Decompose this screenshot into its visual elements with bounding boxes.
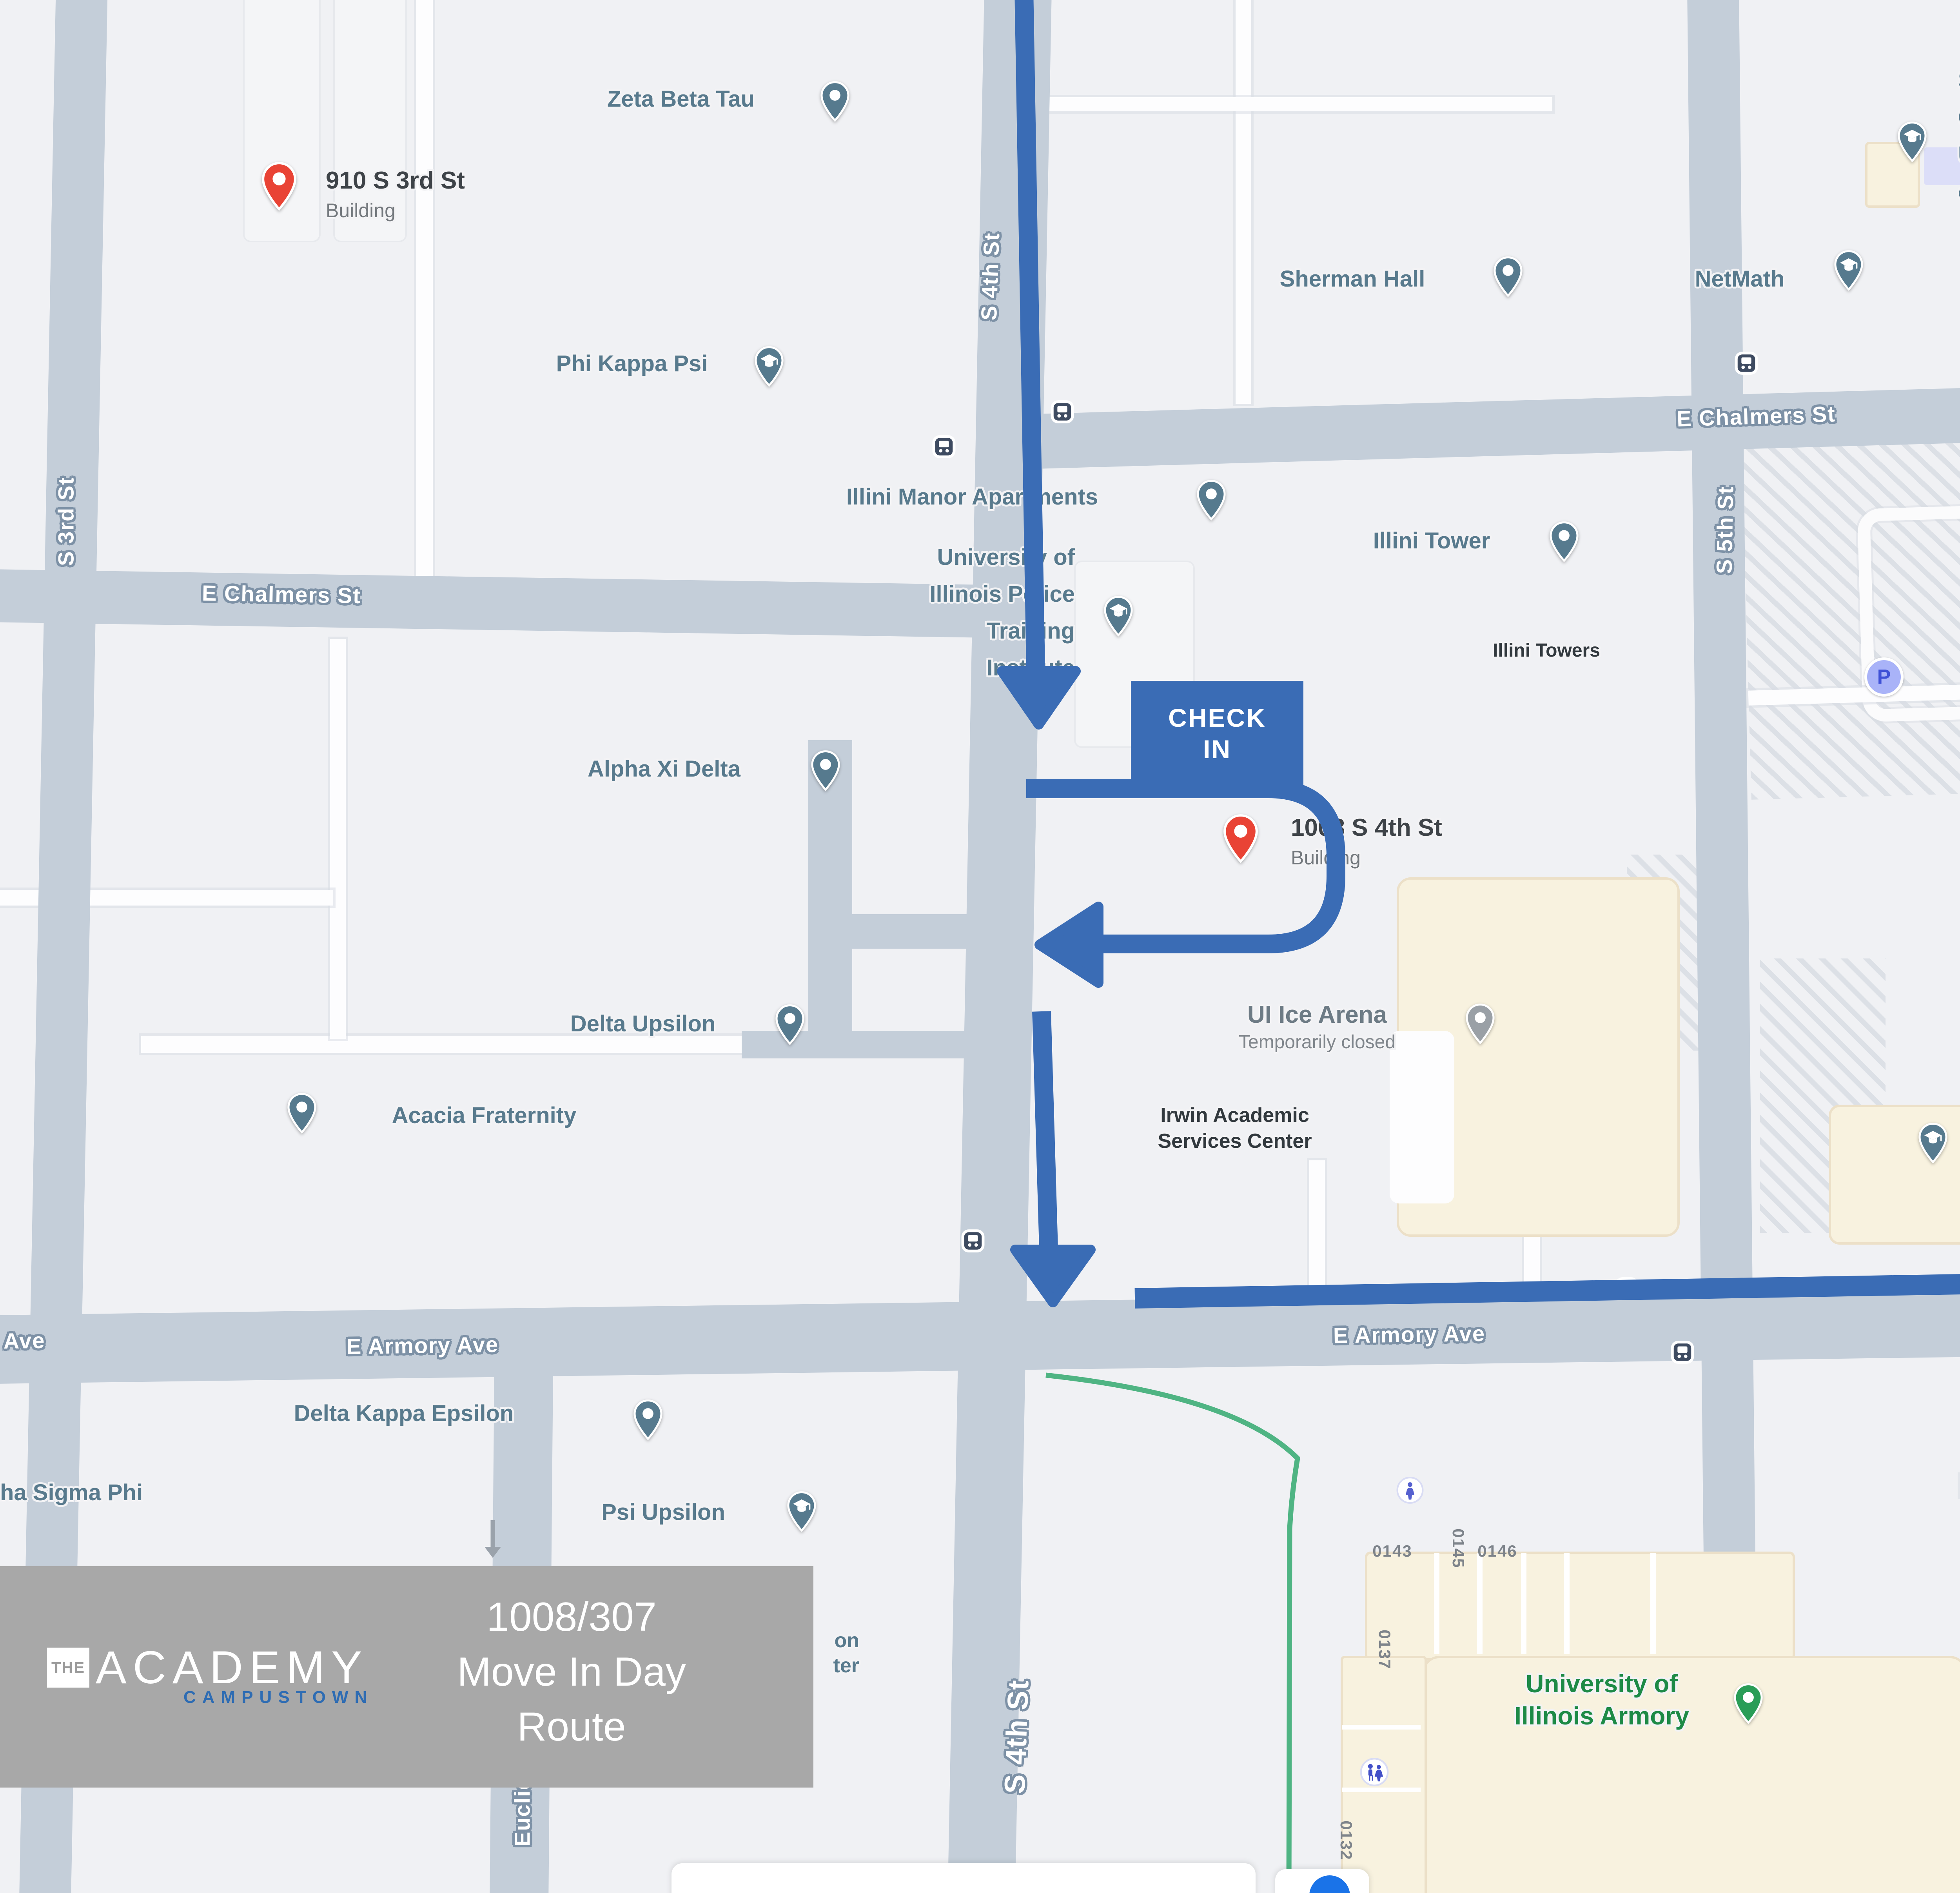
street-label-e-armory-ave: E Armory Ave bbox=[1333, 1321, 1485, 1348]
illini-manor-apartments-label-line: Illini Manor Apartments bbox=[846, 486, 1098, 508]
illini-manor-apartments-label[interactable]: Illini Manor Apartments bbox=[846, 486, 1098, 508]
university-of-illinois-armory-label-line: Illinois Armory bbox=[1514, 1700, 1689, 1732]
room-divider bbox=[1434, 1553, 1439, 1654]
logo-the-mark: THE bbox=[47, 1648, 89, 1688]
bus-stop-icon[interactable] bbox=[1670, 1339, 1695, 1367]
room-number: 0137 bbox=[1375, 1630, 1394, 1669]
delta-upsilon-label[interactable]: Delta Upsilon bbox=[570, 1013, 716, 1035]
ui-ice-arena-courtyard bbox=[1390, 1031, 1454, 1203]
room-divider bbox=[1477, 1553, 1483, 1654]
illini-tower-label-line: Illini Tower bbox=[1373, 530, 1490, 552]
netmath-pin[interactable] bbox=[1834, 250, 1864, 292]
street-label-s-5th-st: S 5th St bbox=[1711, 486, 1739, 574]
map-info-card[interactable] bbox=[671, 1863, 1256, 1893]
university-of-illinois-armory-label[interactable]: University ofIllinois Armory bbox=[1514, 1668, 1689, 1732]
route-arrowhead-left bbox=[1040, 907, 1098, 983]
910-s-3rd-st-pin[interactable] bbox=[261, 162, 297, 212]
alpha-xi-delta-label-line: Alpha Xi Delta bbox=[588, 758, 740, 780]
minor-road bbox=[1035, 97, 1552, 111]
acacia-fraternity-label-line: Acacia Fraternity bbox=[392, 1104, 577, 1127]
u-of-i-police-training-institute-label-line: University of bbox=[929, 539, 1075, 576]
street-label-e-chalmers-st: E Chalmers St bbox=[1676, 401, 1836, 432]
bus-stop-icon[interactable] bbox=[1049, 399, 1075, 427]
check-in-line1: CHECK bbox=[1131, 702, 1303, 733]
room-divider bbox=[1521, 1553, 1526, 1654]
910-s-3rd-st-label-line: Building bbox=[326, 196, 465, 225]
ui-ice-arena-label-line: Temporarily closed bbox=[1239, 1029, 1396, 1056]
minor-road bbox=[1236, 0, 1251, 404]
bus-stop-icon[interactable] bbox=[1614, 1276, 1640, 1304]
lavender-building bbox=[1924, 147, 1960, 185]
check-in-line2: IN bbox=[1131, 733, 1303, 765]
psi-upsilon-label[interactable]: Psi Upsilon bbox=[601, 1501, 725, 1524]
street-label-e-chalmers-st: E Chalmers St bbox=[202, 580, 361, 608]
room-number: 0146 bbox=[1477, 1542, 1517, 1561]
family-restroom-icon[interactable] bbox=[1359, 1757, 1389, 1789]
delta-kappa-epsilon-label-line: Delta Kappa Epsilon bbox=[294, 1402, 514, 1425]
phi-kappa-psi-label-line: Phi Kappa Psi bbox=[556, 352, 708, 375]
delta-upsilon-pin[interactable] bbox=[775, 1004, 805, 1047]
street-label-s-4th-st: S 4th St bbox=[976, 232, 1005, 321]
room-divider bbox=[1650, 1553, 1656, 1654]
route-segment-u-turn bbox=[1026, 789, 1336, 944]
university-of-illinois-armory-pin[interactable] bbox=[1733, 1683, 1763, 1726]
irwin-academic-services-center-label[interactable]: Irwin AcademicServices Center bbox=[1158, 1102, 1312, 1154]
study-abroad-offices-pin[interactable] bbox=[1897, 121, 1927, 164]
ui-ice-arena-label[interactable]: UI Ice ArenaTemporarily closed bbox=[1239, 1001, 1396, 1056]
sherman-hall-pin[interactable] bbox=[1493, 256, 1523, 299]
street-label-e-armory-ave: E Armory Ave bbox=[346, 1332, 499, 1359]
alpha-xi-delta-label[interactable]: Alpha Xi Delta bbox=[588, 758, 740, 780]
academy-logo: THE ACADEMY bbox=[47, 1641, 368, 1694]
street-label-ave: Ave bbox=[3, 1328, 45, 1354]
illini-tower-label[interactable]: Illini Tower bbox=[1373, 530, 1490, 552]
room-divider bbox=[1342, 1725, 1421, 1730]
910-s-3rd-st-label-line: 910 S 3rd St bbox=[326, 166, 465, 196]
1008-s-4th-st-label-line: 1008 S 4th St bbox=[1291, 813, 1442, 843]
ui-ice-arena-pin[interactable] bbox=[1465, 1003, 1495, 1046]
minor-road bbox=[330, 639, 346, 1039]
street-label-s-4th-st: S 4th St bbox=[998, 1679, 1035, 1794]
logo-campustown-text: CAMPUSTOWN bbox=[183, 1688, 373, 1707]
psi-upsilon-label-line: Psi Upsilon bbox=[601, 1501, 725, 1524]
u-of-i-police-training-institute-label[interactable]: University ofIllinois PoliceTrainingInst… bbox=[929, 539, 1075, 686]
phi-kappa-psi-pin[interactable] bbox=[754, 346, 784, 388]
partial-label-label-line: on bbox=[833, 1628, 859, 1653]
study-abroad-offices-label-line: of Illinois bbox=[1958, 173, 1960, 211]
room-number: 0143 bbox=[1372, 1542, 1412, 1561]
ha-sigma-phi-label-line: ha Sigma Phi bbox=[0, 1481, 143, 1504]
room-divider bbox=[1564, 1553, 1570, 1654]
restroom-icon[interactable] bbox=[1396, 1476, 1424, 1506]
street-label-s-3rd-st: S 3rd St bbox=[53, 477, 79, 566]
armory-room-strip bbox=[1365, 1552, 1795, 1661]
map-canvas[interactable]: CHECK IN THE ACADEMY CAMPUSTOWN 1008/307… bbox=[0, 0, 1960, 1893]
u-of-i-police-training-institute-label-line: Training bbox=[929, 613, 1075, 650]
zeta-beta-tau-label[interactable]: Zeta Beta Tau bbox=[607, 88, 755, 111]
irwin-academic-services-center-label-line: Services Center bbox=[1158, 1128, 1312, 1154]
irwin-academic-services-center-label-line: Irwin Academic bbox=[1158, 1102, 1312, 1128]
acacia-fraternity-label[interactable]: Acacia Fraternity bbox=[392, 1104, 577, 1127]
u-of-i-police-training-institute-pin[interactable] bbox=[1103, 595, 1133, 638]
1008-s-4th-st-label[interactable]: 1008 S 4th StBuilding bbox=[1291, 813, 1442, 873]
logo-academy-text: ACADEMY bbox=[96, 1641, 368, 1694]
school-of-labor-employment-relations-pin[interactable] bbox=[1918, 1122, 1948, 1165]
1008-s-4th-st-label-line: Building bbox=[1291, 843, 1442, 873]
university-of-illinois-armory-label-line: University of bbox=[1514, 1668, 1689, 1700]
delta-kappa-epsilon-pin[interactable] bbox=[633, 1399, 663, 1442]
illini-towers-label[interactable]: Illini Towers bbox=[1493, 641, 1600, 660]
partial-label-label-line: ter bbox=[833, 1653, 859, 1678]
study-abroad-offices-label-line: Study Abroad bbox=[1958, 62, 1960, 99]
partial-label-label[interactable]: onter bbox=[833, 1628, 859, 1678]
room-number: 0132 bbox=[1337, 1820, 1356, 1860]
service-lane-road bbox=[847, 914, 976, 949]
bus-stop-icon[interactable] bbox=[931, 434, 957, 462]
psi-upsilon-pin[interactable] bbox=[787, 1491, 817, 1534]
e-chalmers-st-road-west bbox=[0, 569, 1020, 638]
armory-main-building bbox=[1422, 1656, 1960, 1893]
illini-manor-apartments-pin[interactable] bbox=[1196, 479, 1226, 522]
910-s-3rd-st-label[interactable]: 910 S 3rd StBuilding bbox=[326, 166, 465, 225]
delta-kappa-epsilon-label[interactable]: Delta Kappa Epsilon bbox=[294, 1402, 514, 1425]
ha-sigma-phi-label[interactable]: ha Sigma Phi bbox=[0, 1481, 143, 1504]
zeta-beta-tau-label-line: Zeta Beta Tau bbox=[607, 88, 755, 111]
netmath-label[interactable]: NetMath bbox=[1695, 268, 1785, 290]
zeta-beta-tau-pin[interactable] bbox=[820, 81, 850, 123]
netmath-label-line: NetMath bbox=[1695, 268, 1785, 290]
check-in-label: CHECK IN bbox=[1131, 681, 1303, 786]
room-number: 0145 bbox=[1449, 1528, 1468, 1568]
alpha-xi-delta-pin[interactable] bbox=[811, 750, 840, 793]
study-abroad-offices-label[interactable]: Study AbroadOffices at theUniversityof I… bbox=[1958, 62, 1960, 211]
minor-road bbox=[416, 0, 433, 580]
delta-upsilon-label-line: Delta Upsilon bbox=[570, 1013, 716, 1035]
ui-ice-arena-label-line: UI Ice Arena bbox=[1239, 1001, 1396, 1029]
illini-tower-pin[interactable] bbox=[1549, 521, 1579, 564]
u-of-i-police-training-institute-label-line: Institute bbox=[929, 650, 1075, 686]
1008-s-4th-st-pin[interactable] bbox=[1223, 814, 1258, 865]
route-segment-s4th-south bbox=[1042, 1011, 1049, 1249]
study-abroad-offices-label-line: University bbox=[1958, 136, 1960, 173]
study-abroad-offices-label-line: Offices at the bbox=[1958, 99, 1960, 136]
minor-road bbox=[141, 1036, 753, 1053]
phi-kappa-psi-label[interactable]: Phi Kappa Psi bbox=[556, 352, 708, 375]
bus-stop-icon[interactable] bbox=[1733, 350, 1759, 378]
sherman-hall-label[interactable]: Sherman Hall bbox=[1280, 268, 1425, 290]
u-of-i-police-training-institute-label-line: Illinois Police bbox=[929, 576, 1075, 613]
parking-icon[interactable]: P bbox=[1864, 657, 1904, 697]
acacia-fraternity-pin[interactable] bbox=[287, 1093, 317, 1135]
route-title: 1008/307 Move In Day Route bbox=[457, 1590, 686, 1754]
sherman-hall-label-line: Sherman Hall bbox=[1280, 268, 1425, 290]
bus-stop-icon[interactable] bbox=[960, 1228, 986, 1256]
illini-towers-label-line: Illini Towers bbox=[1493, 641, 1600, 660]
